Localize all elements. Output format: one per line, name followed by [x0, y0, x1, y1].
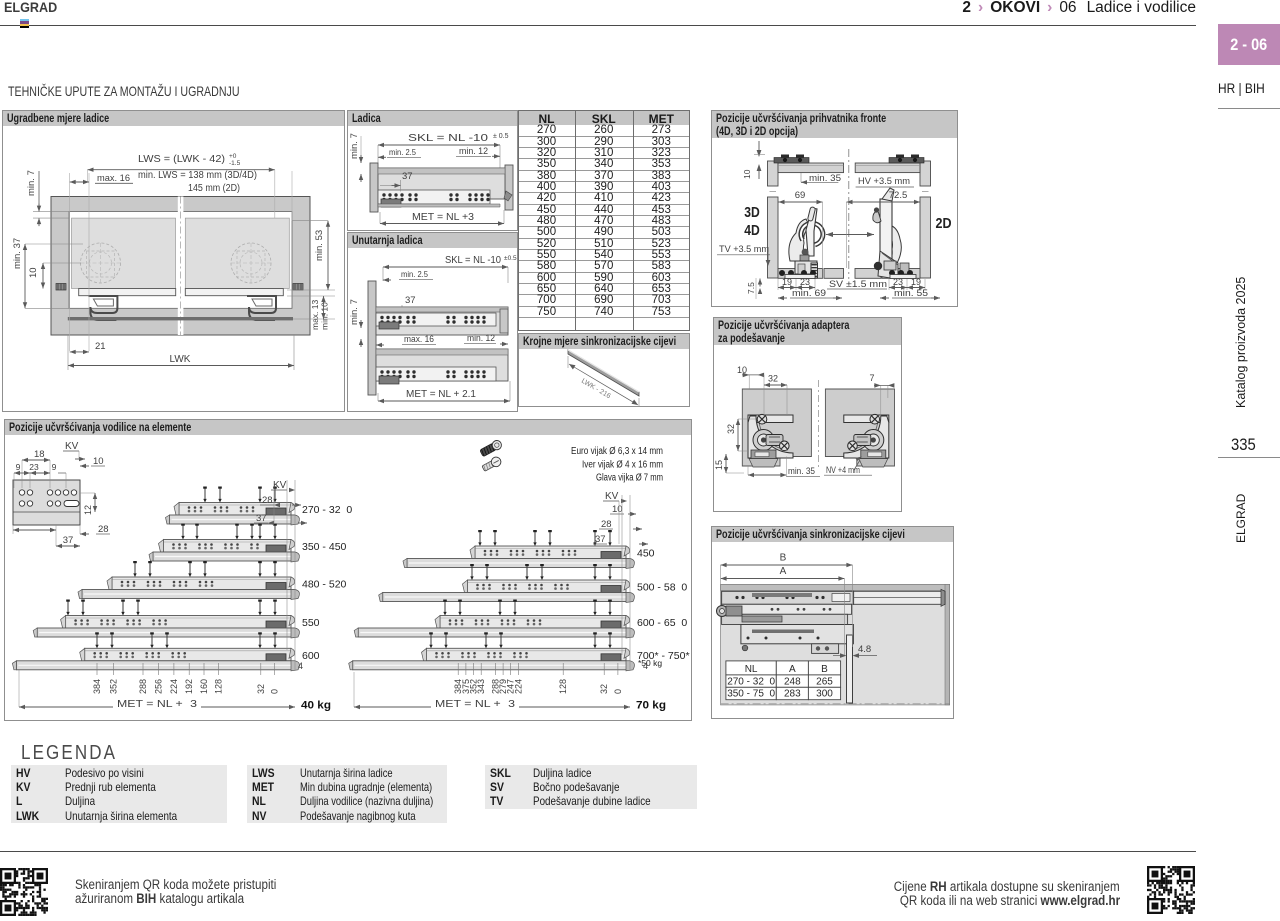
svg-text:A: A [780, 566, 787, 577]
svg-text:10: 10 [93, 456, 104, 467]
svg-text:350 - 75 0: 350 - 75 0 [727, 689, 775, 700]
svg-text:*50 kg: *50 kg [638, 658, 662, 668]
svg-text:288: 288 [138, 679, 148, 694]
svg-text:224: 224 [513, 679, 523, 694]
svg-text:4: 4 [643, 661, 648, 671]
svg-text:MET = NL + 3: MET = NL + 3 [117, 699, 198, 710]
svg-text:224: 224 [169, 679, 179, 694]
svg-text:TV +3.5 mm: TV +3.5 mm [719, 244, 769, 255]
svg-text:480 - 520: 480 - 520 [302, 579, 347, 591]
svg-text:10: 10 [612, 504, 623, 515]
svg-text:9: 9 [52, 462, 57, 472]
svg-text:21: 21 [95, 341, 106, 352]
svg-text:LWS = (LWK - 42): LWS = (LWK - 42) [138, 154, 225, 165]
svg-text:SV ±1.5 mm: SV ±1.5 mm [829, 279, 887, 290]
svg-text:32: 32 [768, 374, 778, 384]
svg-text:min. 7: min. 7 [349, 299, 360, 325]
svg-text:MET = NL + 3: MET = NL + 3 [435, 699, 516, 710]
svg-text:7: 7 [869, 373, 874, 383]
svg-text:270 - 32 0: 270 - 32 0 [302, 504, 352, 516]
svg-text:28: 28 [601, 519, 612, 530]
svg-text:15: 15 [714, 460, 724, 470]
svg-text:350 - 450: 350 - 450 [302, 541, 347, 553]
svg-text:600 - 65 0: 600 - 65 0 [637, 617, 687, 629]
svg-text:LWK - 216: LWK - 216 [580, 378, 612, 401]
svg-text:265: 265 [816, 676, 833, 687]
svg-text:28: 28 [98, 524, 109, 535]
svg-text:min. 69: min. 69 [792, 288, 826, 299]
svg-text:40 kg: 40 kg [301, 700, 331, 712]
svg-text:-1.5: -1.5 [229, 160, 241, 167]
svg-text:min. 37: min. 37 [12, 238, 23, 269]
svg-text:B: B [780, 553, 787, 564]
svg-text:9: 9 [16, 462, 21, 472]
svg-text:10: 10 [742, 169, 752, 179]
svg-text:0: 0 [613, 689, 623, 694]
svg-text:18: 18 [34, 449, 45, 460]
svg-text:0: 0 [270, 689, 280, 694]
svg-text:248: 248 [784, 676, 801, 687]
svg-text:270 - 32 0: 270 - 32 0 [727, 676, 775, 687]
svg-text:min. LWS = 138 mm (3D/4D): min. LWS = 138 mm (3D/4D) [138, 170, 257, 181]
svg-text:37: 37 [405, 295, 416, 306]
svg-text:KV: KV [605, 491, 619, 502]
svg-text:MET = NL + 2.1: MET = NL + 2.1 [406, 389, 476, 400]
svg-text:32: 32 [726, 424, 736, 434]
svg-text:69: 69 [795, 190, 806, 201]
svg-text:300: 300 [816, 689, 833, 700]
svg-text:28: 28 [262, 495, 273, 506]
svg-text:min. 12: min. 12 [459, 146, 488, 157]
svg-text:min. 7: min. 7 [349, 133, 360, 159]
svg-text:10: 10 [28, 267, 39, 278]
svg-text:±0.5: ±0.5 [504, 255, 517, 262]
svg-text:min. 55: min. 55 [894, 288, 928, 299]
svg-text:NL: NL [745, 664, 758, 675]
svg-text:min. 12: min. 12 [467, 333, 495, 344]
svg-text:min. 35: min. 35 [788, 466, 815, 477]
svg-text:NV +4 mm: NV +4 mm [826, 465, 860, 476]
svg-text:A: A [789, 664, 796, 675]
svg-text:600: 600 [302, 650, 320, 662]
svg-text:256: 256 [154, 679, 164, 694]
svg-text:min. 53: min. 53 [314, 230, 325, 261]
svg-text:max. 13: max. 13 [310, 299, 320, 330]
svg-text:Euro vijak Ø 6,3 x 14 mm: Euro vijak Ø 6,3 x 14 mm [571, 446, 663, 457]
svg-text:2D: 2D [936, 215, 952, 232]
svg-text:Glava vijka Ø 7 mm: Glava vijka Ø 7 mm [596, 473, 663, 484]
svg-text:LWK: LWK [170, 354, 191, 365]
svg-text:Iver vijak Ø 4 x 16 mm: Iver vijak Ø 4 x 16 mm [582, 460, 663, 471]
svg-text:KV: KV [273, 480, 287, 491]
svg-text:± 0.5: ± 0.5 [493, 133, 509, 140]
svg-text:max. 16: max. 16 [97, 173, 130, 184]
svg-text:10: 10 [737, 365, 747, 375]
svg-text:352: 352 [109, 679, 119, 694]
svg-text:283: 283 [784, 689, 801, 700]
svg-text:37: 37 [256, 513, 267, 524]
svg-text:37: 37 [595, 534, 606, 545]
svg-text:3D: 3D [744, 204, 760, 221]
svg-text:160: 160 [199, 679, 209, 694]
svg-text:37: 37 [63, 535, 74, 546]
svg-text:HV +3.5 mm: HV +3.5 mm [858, 176, 910, 187]
svg-text:SKL = NL -10: SKL = NL -10 [408, 133, 489, 144]
svg-text:SKL = NL -10: SKL = NL -10 [445, 255, 501, 266]
svg-text:min. 2.5: min. 2.5 [401, 269, 428, 279]
svg-text:4.8: 4.8 [858, 644, 871, 655]
svg-text:32: 32 [256, 684, 266, 694]
svg-text:550: 550 [302, 617, 320, 629]
svg-text:KV: KV [65, 441, 79, 452]
svg-text:4: 4 [298, 661, 303, 671]
svg-text:70 kg: 70 kg [636, 700, 666, 712]
svg-text:450: 450 [637, 548, 655, 560]
svg-text:12: 12 [83, 505, 93, 515]
svg-text:+0: +0 [229, 153, 237, 160]
svg-text:MET = NL +3: MET = NL +3 [412, 212, 474, 223]
svg-text:145 mm (2D): 145 mm (2D) [188, 183, 240, 194]
svg-text:23: 23 [29, 462, 39, 472]
svg-text:min. 7: min. 7 [26, 170, 37, 196]
svg-text:72.5: 72.5 [889, 190, 908, 201]
svg-text:min. 2.5: min. 2.5 [389, 147, 416, 157]
svg-text:37: 37 [402, 171, 413, 182]
svg-text:B: B [821, 664, 828, 675]
svg-text:128: 128 [214, 679, 224, 694]
svg-text:192: 192 [184, 679, 194, 694]
svg-text:max. 16: max. 16 [404, 334, 434, 345]
svg-text:343: 343 [476, 679, 486, 694]
svg-text:32: 32 [599, 684, 609, 694]
svg-text:7.5: 7.5 [746, 282, 756, 294]
svg-text:128: 128 [558, 679, 568, 694]
svg-text:384: 384 [92, 679, 102, 694]
svg-text:500 - 58 0: 500 - 58 0 [637, 582, 687, 594]
svg-text:4D: 4D [744, 222, 760, 239]
